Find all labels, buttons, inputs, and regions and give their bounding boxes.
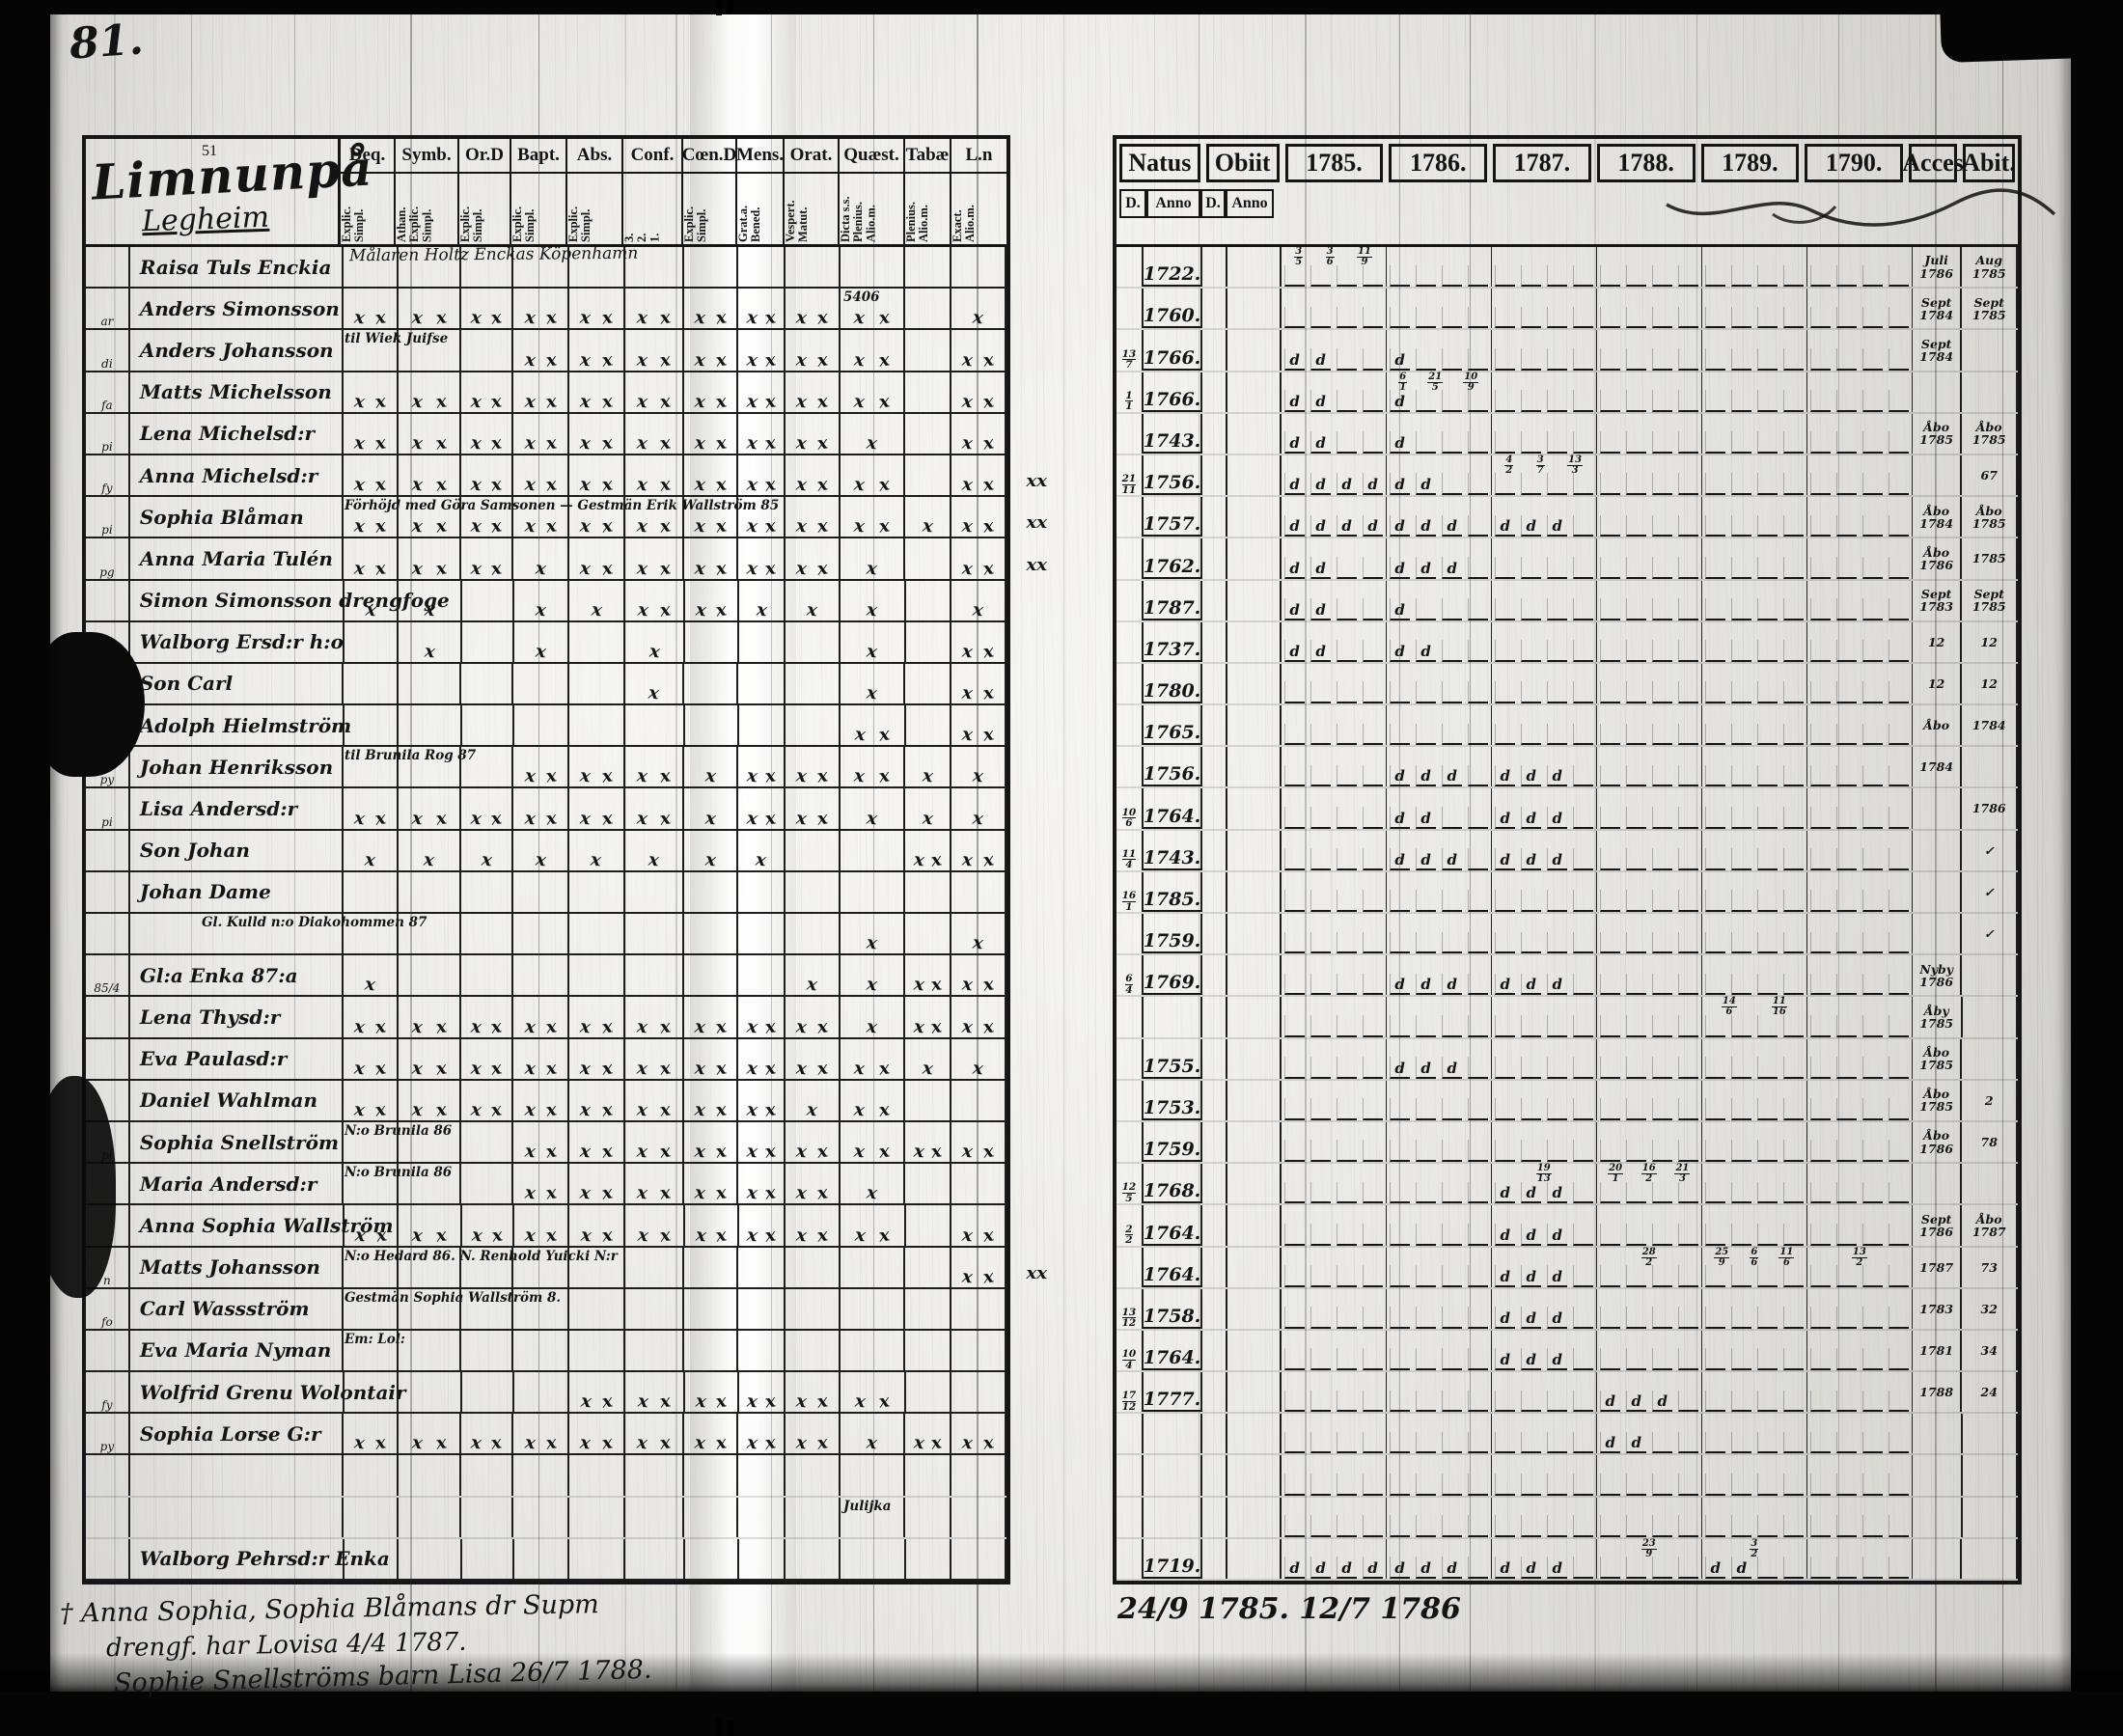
mark-cell: xx: [738, 330, 786, 370]
mark-cell: xx: [905, 955, 951, 995]
mark-cell: xx: [344, 788, 399, 828]
mark-cell: xx: [399, 1039, 462, 1079]
table-row: 1765.Åbo1784: [1117, 705, 2018, 747]
table-row: piSophia SnellströmxxxxxxxxxxxxxxxxxxN:o…: [86, 1122, 1006, 1164]
mark-cell: xx: [625, 788, 685, 828]
mark-cell: [905, 1248, 951, 1287]
mark-cell: xx: [951, 1122, 1006, 1162]
abit-entry: ✓: [1962, 914, 2018, 953]
table-row: pyJohan Henrikssonxxxxxxxxxxxxxxxtil Bru…: [86, 747, 1006, 788]
person-name: Anna Maria Tulén: [130, 538, 344, 578]
mark-cell: xx: [513, 747, 569, 786]
year-cell: d: [1387, 581, 1492, 620]
year-cell: dd: [1282, 581, 1387, 620]
table-row: [1117, 1498, 2018, 1539]
year-cell: d: [1387, 414, 1492, 454]
year-cell: dd32: [1702, 1539, 1807, 1579]
year-cell: [1702, 1081, 1807, 1120]
abit-header: Abit.: [1963, 144, 2015, 182]
abit-entry: 34: [1962, 1331, 2018, 1370]
obiit-day: [1202, 581, 1227, 620]
scratch-line: [1063, 0, 1064, 1736]
mark-cell: xx: [684, 997, 738, 1036]
outside-marks: xx: [1027, 471, 1047, 491]
mark-cell: [461, 1164, 513, 1203]
acces-entry: 1788: [1913, 1372, 1963, 1412]
mark-cell: xx: [399, 1205, 462, 1245]
mark-cell: [841, 247, 906, 287]
mark-cell: [739, 1539, 786, 1579]
acces-entry: 12: [1913, 622, 1963, 662]
left-page-table: 51 Limnunpå Legheim Deq.Explic. Simpl.Sy…: [82, 135, 1010, 1584]
mark-cell: xx: [841, 372, 906, 412]
year-cell: [1282, 1164, 1387, 1203]
mark-cell: xx: [951, 1414, 1006, 1453]
year-cell: [1282, 831, 1387, 870]
table-row: 1743.dddÅbo 1785Åbo 1785: [1117, 414, 2018, 455]
year-cell: [1807, 414, 1913, 454]
table-row: nMatts JohanssonxxN:o Hedard 86. N. Renh…: [86, 1248, 1006, 1289]
mark-cell: xx: [951, 497, 1006, 537]
year-cell: [1702, 414, 1807, 454]
acces-entry: Nyby 1786: [1913, 955, 1963, 995]
mark-cell: xx: [625, 747, 685, 786]
date-fractions: 4237133: [1494, 455, 1594, 476]
abit-entry: 78: [1962, 1122, 2018, 1162]
person-name: Gl:a Enka 87:a: [130, 955, 344, 995]
mark-cell: [569, 1331, 625, 1370]
mark-cell: xx: [569, 1122, 625, 1162]
outside-marks: xx: [1027, 512, 1047, 533]
year-cell: [1597, 831, 1702, 870]
mark-cell: [738, 1455, 786, 1495]
obiit-year: [1227, 455, 1282, 495]
abit-entry: Åbo 1785: [1962, 414, 2018, 454]
mark-cell: [345, 1539, 400, 1579]
mark-cell: x: [569, 581, 625, 620]
mark-cell: [399, 705, 462, 745]
mark-cell: xx: [786, 1372, 841, 1412]
natus-year: 1719.: [1144, 1539, 1203, 1579]
year-header-1789: 1789.: [1701, 144, 1800, 182]
obiit-year: [1227, 914, 1282, 953]
mark-cell: xx: [625, 1122, 685, 1162]
film-corner: [1940, 0, 2086, 63]
obiit-year: [1227, 1164, 1282, 1203]
mark-cell: [569, 1539, 625, 1579]
mark-cell: [951, 1164, 1006, 1203]
year-cell: [1492, 1039, 1597, 1079]
right-table-body: 1722.3536119Juli 1786Aug 17851760.Sept 1…: [1117, 247, 2018, 1581]
natus-year: 1737.: [1144, 622, 1203, 662]
year-cell: [1807, 289, 1913, 328]
table-row: 1780.1212: [1117, 664, 2018, 705]
mark-cell: [684, 914, 738, 953]
obiit-header: Obiit: [1206, 144, 1280, 182]
obiit-day: [1202, 1539, 1227, 1579]
table-row: 1759.Åbo 178678: [1117, 1122, 2018, 1164]
natus-day: 106: [1117, 788, 1144, 828]
year-cell: [1597, 1122, 1702, 1162]
abit-entry: ✓: [1962, 831, 2018, 870]
date-fractions: 239: [1599, 1539, 1699, 1559]
abit-entry: ✓: [1962, 872, 2018, 912]
obiit-year: [1227, 247, 1282, 287]
natus-year: 1764.: [1144, 1248, 1203, 1287]
mark-cell: xx: [514, 1205, 570, 1245]
acces-entry: [1913, 1455, 1963, 1495]
mark-cell: xx: [951, 955, 1006, 995]
mark-cell: [461, 872, 513, 912]
year-cell: dd: [1387, 455, 1492, 495]
mark-cell: xx: [513, 1122, 569, 1162]
film-edge-top: [0, 0, 2123, 14]
year-cell: ddd: [1492, 788, 1597, 828]
mark-cell: xx: [786, 414, 841, 454]
row-annotation: Em: Lol:: [345, 1332, 405, 1347]
obiit-day: [1202, 831, 1227, 870]
year-cell: d61215109: [1387, 372, 1492, 412]
natus-year: 1777.: [1144, 1372, 1203, 1412]
year-cell: [1702, 1372, 1807, 1412]
abit-entry: 2: [1962, 1081, 2018, 1120]
obiit-day: [1202, 1081, 1227, 1120]
year-cell: [1492, 1455, 1597, 1495]
obiit-year: [1227, 664, 1282, 703]
mark-cell: xx: [951, 330, 1006, 370]
year-cell: [1597, 247, 1702, 287]
obiit-day: [1202, 455, 1227, 495]
mark-cell: xx: [738, 372, 786, 412]
mark-cell: [625, 955, 685, 995]
mark-cell: xx: [684, 289, 738, 328]
year-cell: dddd: [1282, 455, 1387, 495]
mark-cell: xx: [625, 581, 685, 620]
mark-cell: [738, 914, 786, 953]
year-cell: [1597, 538, 1702, 578]
year-cell: 25966116: [1702, 1248, 1807, 1287]
natus-year: 1766.: [1144, 372, 1203, 412]
table-row: 1757.ddddddddddÅbo 1784Åbo 1785: [1117, 497, 2018, 538]
mark-cell: xx: [569, 788, 625, 828]
natus-day: [1117, 581, 1144, 620]
natus-day: 64: [1117, 955, 1144, 995]
natus-year: 1765.: [1144, 705, 1203, 745]
mark-cell: [462, 1372, 514, 1412]
obiit-year: [1227, 747, 1282, 786]
year-cell: [1807, 664, 1913, 703]
person-name: Lisa Andersd:r: [130, 788, 344, 828]
mark-cell: [399, 1455, 462, 1495]
mark-cell: [786, 1498, 841, 1537]
obiit-day: [1202, 914, 1227, 953]
year-cell: [1807, 1039, 1913, 1079]
margin-note: [86, 1331, 130, 1370]
mark-cell: [905, 872, 951, 912]
mark-cell: xx: [344, 538, 399, 578]
mark-cell: [786, 914, 841, 953]
year-cell: [1282, 747, 1387, 786]
table-row: Maria Andersd:rxxxxxxxxxxxxxN:o Brunila …: [86, 1164, 1006, 1205]
mark-cell: [513, 1498, 569, 1537]
person-name: Maria Andersd:r: [130, 1164, 344, 1203]
year-cell: [1702, 1205, 1807, 1245]
acces-entry: [1913, 872, 1963, 912]
mark-cell: [786, 1248, 841, 1287]
mark-cell: xx: [569, 414, 625, 454]
margin-note: [86, 1498, 130, 1537]
acces-entry: Sept 1784: [1913, 289, 1963, 328]
year-cell: [1387, 1455, 1492, 1495]
margin-note: [86, 1039, 130, 1079]
year-cell: [1282, 1372, 1387, 1412]
mark-cell: xx: [951, 372, 1006, 412]
year-cell: [1807, 997, 1913, 1036]
abit-entry: Sept 1785: [1962, 581, 2018, 620]
mark-cell: [345, 1372, 400, 1412]
mark-cell: xx: [739, 1205, 786, 1245]
mark-cell: xx: [625, 1205, 685, 1245]
date-fractions: 1461116: [1704, 997, 1805, 1017]
year-cell: [1807, 372, 1913, 412]
mark-cell: x: [905, 788, 951, 828]
mark-cell: [906, 1539, 952, 1579]
margin-note: 85/4: [86, 955, 130, 995]
person-name: Matts Johansson: [130, 1248, 344, 1287]
natus-day: [1117, 538, 1144, 578]
year-cell: [1387, 872, 1492, 912]
natus-year: 1722.: [1144, 247, 1203, 287]
natus-year: 1743.: [1144, 414, 1203, 454]
village-title: Limnunpå: [91, 139, 374, 210]
year-cell: ddd: [1492, 955, 1597, 995]
mark-cell: [739, 622, 786, 662]
person-name: Sophia Snellström: [130, 1122, 344, 1162]
mark-cell: xx: [685, 1372, 739, 1412]
year-cell: [1702, 1331, 1807, 1370]
natus-year: 1785.: [1144, 872, 1203, 912]
year-cell: ddd: [1387, 955, 1492, 995]
table-row: 1756.dddddd1784: [1117, 747, 2018, 788]
mark-cell: x: [514, 581, 570, 620]
mark-cell: [461, 1331, 513, 1370]
year-cell: [1492, 622, 1597, 662]
mark-cell: [399, 872, 462, 912]
mark-cell: [344, 1498, 399, 1537]
person-name: Walborg Pehrsd:r Enka: [130, 1539, 345, 1579]
year-cell: [1387, 664, 1492, 703]
mark-cell: xx: [786, 1122, 841, 1162]
mark-cell: x: [841, 414, 906, 454]
mark-cell: [905, 914, 951, 953]
mark-cell: [905, 664, 951, 703]
year-cell: [1492, 581, 1597, 620]
year-cell: [1597, 997, 1702, 1036]
natus-year: 1759.: [1144, 1122, 1203, 1162]
header-annotation: Målaren Holtz Enckas Köpenhamn: [349, 244, 638, 266]
acces-entry: 12: [1913, 664, 1963, 703]
year-cell: [1597, 914, 1702, 953]
mark-cell: [461, 664, 513, 703]
natus-year: 1753.: [1144, 1081, 1203, 1120]
year-cell: dd: [1597, 1414, 1702, 1453]
date-fractions: 32: [1704, 1539, 1805, 1559]
mark-cell: xx: [786, 1414, 841, 1453]
table-row: faMatts Michelssonxxxxxxxxxxxxxxxxxxxxxx: [86, 372, 1006, 414]
mark-cell: x: [738, 831, 786, 870]
person-name: Son Carl: [130, 664, 344, 703]
year-cell: [1282, 914, 1387, 953]
year-cell: [1807, 831, 1913, 870]
year-cell: [1282, 788, 1387, 828]
natus-year: 1768.: [1144, 1164, 1203, 1203]
obiit-year: [1227, 1455, 1282, 1495]
row-annotation: til Wiek Juifse: [345, 331, 448, 346]
acces-entry: Sept 1786: [1913, 1205, 1963, 1245]
mark-cell: [738, 664, 786, 703]
year-cell: [1597, 747, 1702, 786]
year-cell: [1387, 289, 1492, 328]
mark-cell: xx: [841, 330, 906, 370]
film-registration-mark: [728, 1721, 733, 1736]
natus-day: 114: [1117, 831, 1144, 870]
mark-cell: xx: [625, 455, 685, 495]
mark-cell: xx: [345, 1205, 400, 1245]
margin-note: [86, 831, 130, 870]
mark-cell: [514, 1539, 570, 1579]
mark-cell: xx: [462, 1205, 514, 1245]
mark-cell: [906, 1372, 952, 1412]
table-row: Julijka: [86, 1498, 1006, 1539]
mark-cell: xx: [684, 1039, 738, 1079]
mark-cell: x: [684, 788, 738, 828]
mark-cell: xx: [399, 289, 462, 328]
mark-cell: [513, 1455, 569, 1495]
year-cell: [1702, 788, 1807, 828]
mark-cell: [786, 705, 841, 745]
year-cell: [1807, 914, 1913, 953]
mark-cell: [905, 1331, 951, 1370]
year-cell: [1807, 1498, 1913, 1537]
table-row: 1755.dddÅbo 1785: [1117, 1039, 2018, 1081]
year-cell: [1282, 1455, 1387, 1495]
abit-entry: [1963, 1498, 2019, 1537]
row-annotation: Gestmän Sophia Wallström 8.: [345, 1290, 561, 1306]
mark-cell: xx: [951, 831, 1006, 870]
date-fractions: 25966116: [1704, 1248, 1805, 1268]
acces-entry: Juli 1786: [1913, 247, 1963, 287]
mark-cell: [399, 1331, 462, 1370]
film-edge-bottom: [0, 1692, 2123, 1736]
table-row: pySophia Lorse G:rxxxxxxxxxxxxxxxxxxxxxx…: [86, 1414, 1006, 1455]
right-table-header: NatusObiit1785.1786.1787.1788.1789.1790.…: [1117, 139, 2018, 247]
natus-day: 1712: [1117, 1372, 1144, 1412]
obiit-year: [1227, 955, 1282, 995]
year-cell: 4237133: [1492, 455, 1597, 495]
mark-cell: x: [841, 538, 906, 578]
natus-header: Natus: [1119, 144, 1200, 182]
mark-cell: xx: [738, 1414, 786, 1453]
abit-entry: [1963, 1414, 2019, 1453]
year-cell: 239: [1597, 1539, 1702, 1579]
mark-cell: xx: [625, 1164, 685, 1203]
year-cell: 1461116: [1702, 997, 1807, 1036]
year-header-1788: 1788.: [1597, 144, 1696, 182]
year-cell: [1807, 497, 1913, 537]
table-row: Son Carlxxxx: [86, 664, 1006, 705]
mark-cell: [569, 705, 625, 745]
mark-cell: [738, 955, 786, 995]
mark-cell: xx: [738, 1122, 786, 1162]
mark-cell: xx: [786, 747, 841, 786]
mark-cell: [684, 664, 738, 703]
mark-cell: [684, 1289, 738, 1329]
year-cell: [1702, 1289, 1807, 1329]
mark-cell: [569, 914, 625, 953]
natus-year: 1759.: [1144, 914, 1203, 953]
mark-cell: [461, 1122, 513, 1162]
mark-cell: xx: [625, 1414, 685, 1453]
mark-cell: [344, 872, 399, 912]
year-cell: [1702, 831, 1807, 870]
table-row: Lena Thysd:rxxxxxxxxxxxxxxxxxxxxxxx: [86, 997, 1006, 1038]
mark-cell: xx: [461, 414, 513, 454]
obiit-year: [1227, 831, 1282, 870]
acces-entry: Åbo 1785: [1913, 414, 1963, 454]
year-cell: [1807, 872, 1913, 912]
mark-cell: xx: [569, 1205, 625, 1245]
mark-cell: xx: [399, 1081, 462, 1120]
obiit-day: [1202, 997, 1227, 1036]
mark-cell: [841, 831, 906, 870]
mark-cell: xx: [513, 372, 569, 412]
mark-cell: [905, 1164, 951, 1203]
mark-cell: xx: [625, 538, 685, 578]
mark-cell: xx: [569, 538, 625, 578]
year-cell: [1492, 372, 1597, 412]
mark-cell: xx: [461, 997, 513, 1036]
mark-cell: xx: [513, 1414, 569, 1453]
obiit-year: [1227, 497, 1282, 537]
mark-cell: [786, 664, 841, 703]
table-row: piSophia BlåmanxxxxxxxxxxxxxxxxxxxxxxxFö…: [86, 497, 1006, 538]
mark-cell: xx: [684, 414, 738, 454]
year-cell: [1282, 1039, 1387, 1079]
mark-cell: xx: [461, 1414, 513, 1453]
mark-cell: [625, 1455, 685, 1495]
acces-entry: [1913, 1164, 1963, 1203]
year-cell: [1702, 289, 1807, 328]
year-cell: [1807, 955, 1913, 995]
abit-entry: 1784: [1962, 705, 2018, 745]
mark-cell: x: [625, 622, 685, 662]
year-cell: dd: [1387, 788, 1492, 828]
table-row: Walborg Ersd:r h:oxxxxxx: [86, 622, 1006, 664]
mark-cell: [786, 872, 841, 912]
mark-cell: [905, 414, 951, 454]
year-cell: [1702, 914, 1807, 953]
mark-cell: x: [841, 622, 906, 662]
table-row: 1762.dddddÅbo 17861785: [1117, 538, 2018, 580]
year-cell: [1807, 247, 1913, 287]
person-name: Walborg Ersd:r h:o: [130, 622, 345, 662]
mark-cell: xx: [684, 538, 738, 578]
year-cell: [1807, 455, 1913, 495]
ink-flourish: [1657, 185, 2062, 234]
mark-cell: [569, 1498, 625, 1537]
mark-cell: [684, 247, 738, 287]
year-cell: [1807, 1081, 1913, 1120]
